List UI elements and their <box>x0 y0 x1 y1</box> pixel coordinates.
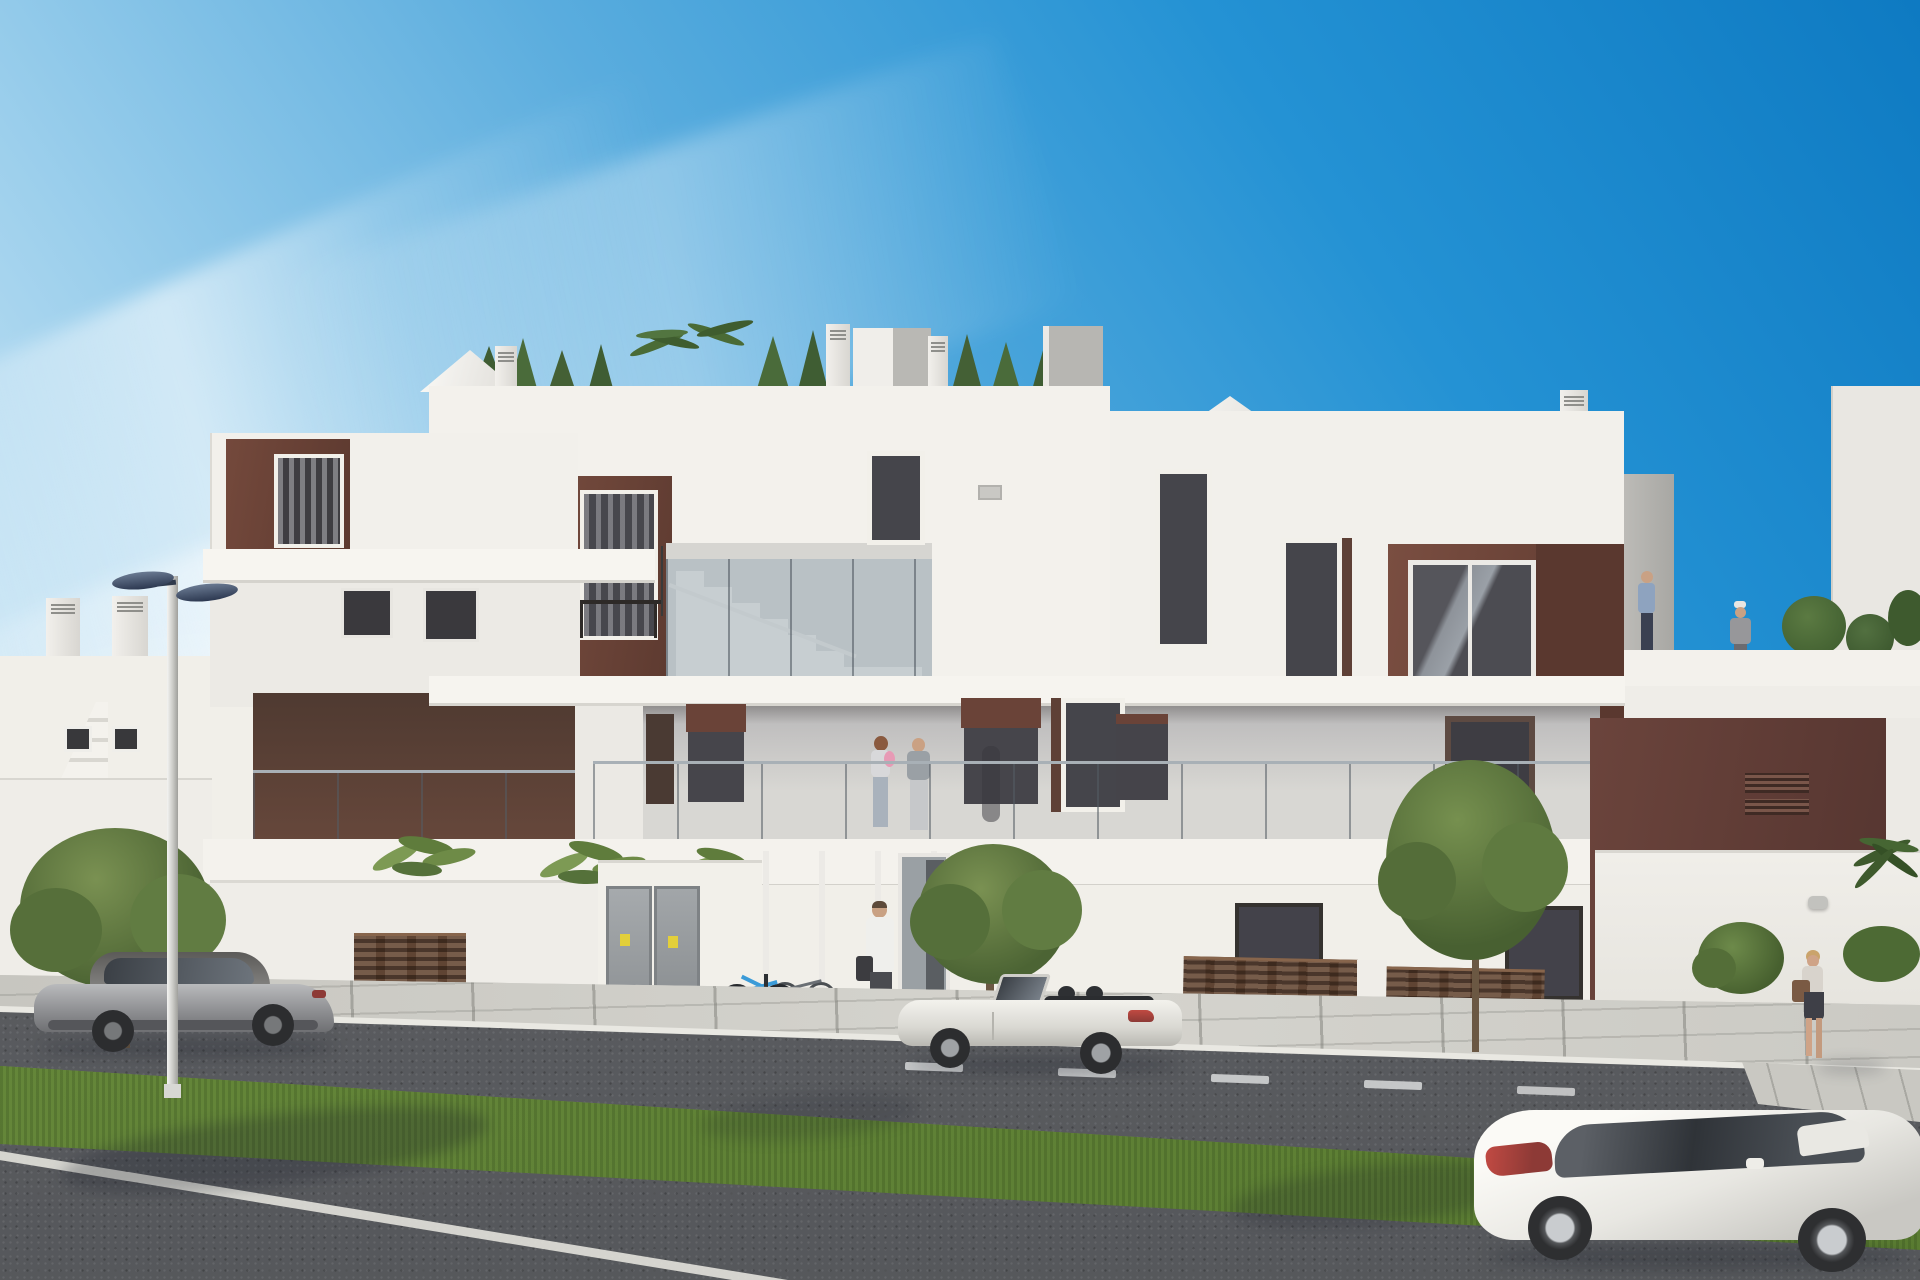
shrub <box>1692 912 1792 998</box>
staircase-bay <box>666 543 932 683</box>
vent-louver <box>1745 773 1809 793</box>
chimney <box>928 336 948 392</box>
roof-tree <box>952 334 982 390</box>
street-lamp <box>100 560 260 1106</box>
stair-bulkhead <box>1043 326 1103 392</box>
figure-leg <box>1816 1018 1822 1058</box>
lamp-head <box>111 569 174 592</box>
fascia-band <box>203 549 655 583</box>
tree <box>1378 752 1578 1062</box>
hedge <box>1843 926 1920 982</box>
window <box>1155 469 1212 649</box>
window <box>274 454 344 548</box>
terrace-plant <box>1782 596 1846 656</box>
car-convertible-white <box>896 960 1186 1080</box>
roof-tree <box>756 336 790 392</box>
staircase-glass <box>666 559 932 683</box>
car-coupe-white <box>1468 1088 1920 1280</box>
car-doorline <box>992 1012 994 1040</box>
car-wheel <box>930 1028 970 1068</box>
window <box>867 451 925 545</box>
window-reveal <box>1342 538 1352 692</box>
antenna <box>661 546 663 616</box>
lamp-base <box>164 1084 181 1098</box>
roof-tree <box>992 342 1020 390</box>
car-wheel <box>1798 1208 1866 1272</box>
figure-torso <box>1730 618 1751 644</box>
figure-head <box>1641 571 1653 583</box>
figure-hair <box>874 736 888 751</box>
neighbor-window <box>64 726 92 752</box>
sidewalk-woman <box>1792 948 1852 1078</box>
tree-canopy <box>910 884 990 960</box>
figure-hair <box>872 901 887 908</box>
stair-bulkhead-panel <box>893 328 931 392</box>
juliet-rail-post <box>654 600 657 638</box>
tree-canopy <box>1378 842 1456 920</box>
tree-canopy <box>1002 870 1082 950</box>
car-wheel <box>1528 1196 1592 1260</box>
car-mirror <box>1746 1158 1764 1169</box>
shutter-box <box>686 704 746 732</box>
figure-head <box>1735 607 1746 618</box>
figure-torso <box>1638 583 1655 613</box>
figure-head <box>912 738 925 752</box>
juliet-rail <box>576 600 662 604</box>
window <box>1281 538 1342 692</box>
chimney <box>826 324 850 392</box>
palm-fronds <box>1845 830 1920 910</box>
roof-tree <box>588 344 614 392</box>
small-window <box>423 588 479 642</box>
banana-plants <box>370 828 490 908</box>
warning-sticker <box>620 934 630 946</box>
warning-sticker <box>668 936 678 948</box>
car-taillight <box>1128 1010 1154 1022</box>
figure-skirt <box>1804 992 1824 1020</box>
chimney <box>46 598 80 662</box>
shutter-box <box>961 698 1041 728</box>
terrace-plant <box>1888 590 1920 646</box>
figure-legs <box>1641 613 1653 655</box>
tree-canopy <box>1482 822 1568 912</box>
facade-vent <box>978 485 1002 500</box>
car-wheel <box>1080 1032 1122 1074</box>
lamp-head <box>175 581 238 604</box>
wall-light <box>1808 896 1828 909</box>
lamp-pole <box>167 576 178 1090</box>
terrace-parapet <box>1595 650 1920 688</box>
figure-leg <box>1806 1018 1812 1056</box>
vent-louver <box>1745 799 1809 815</box>
car-taillight <box>312 990 326 998</box>
render-scene <box>0 0 1920 1280</box>
juliet-rail-post <box>580 600 583 638</box>
tree-trunk <box>1472 952 1479 1052</box>
small-window <box>341 588 393 638</box>
roof-tree <box>798 330 828 390</box>
